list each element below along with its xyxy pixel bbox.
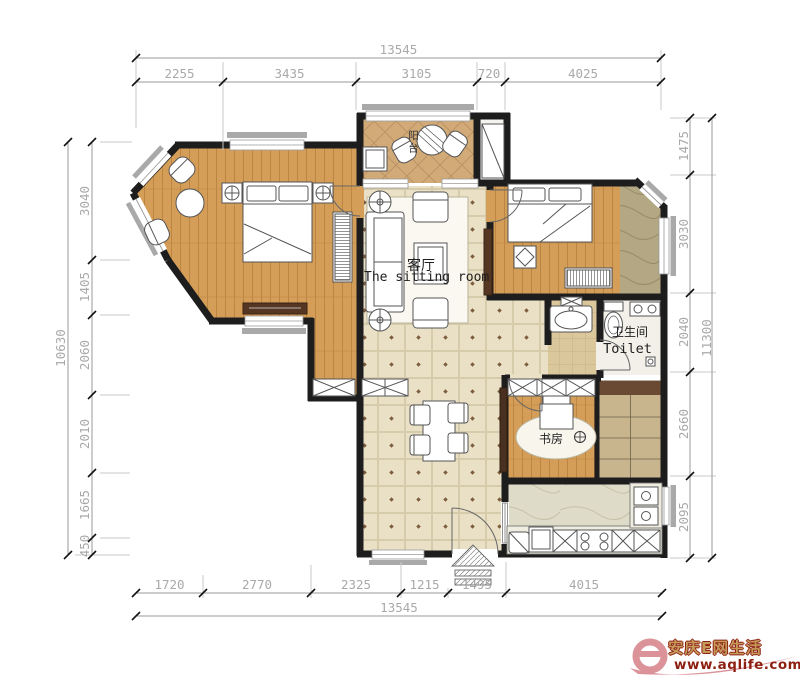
floor-plan-drawing: [0, 0, 800, 685]
watermark-url: www.aqlife.com: [674, 657, 800, 673]
watermark-brand: 安庆E网生活: [668, 636, 798, 658]
floor-plan-page: 13545 2255 3435 3105 720 4025 1720 2770 …: [0, 0, 800, 685]
